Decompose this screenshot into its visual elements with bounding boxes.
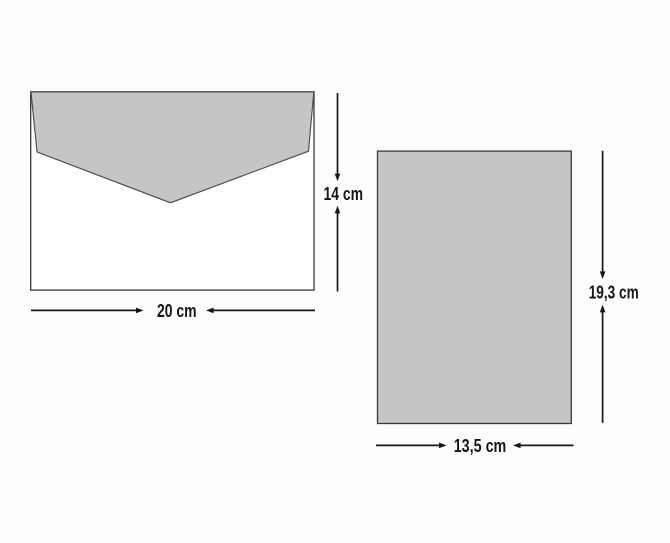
svg-text:14 cm: 14 cm [324, 184, 364, 204]
svg-text:20 cm: 20 cm [157, 301, 197, 321]
svg-text:13,5 cm: 13,5 cm [454, 436, 507, 456]
svg-text:19,3 cm: 19,3 cm [589, 282, 639, 302]
